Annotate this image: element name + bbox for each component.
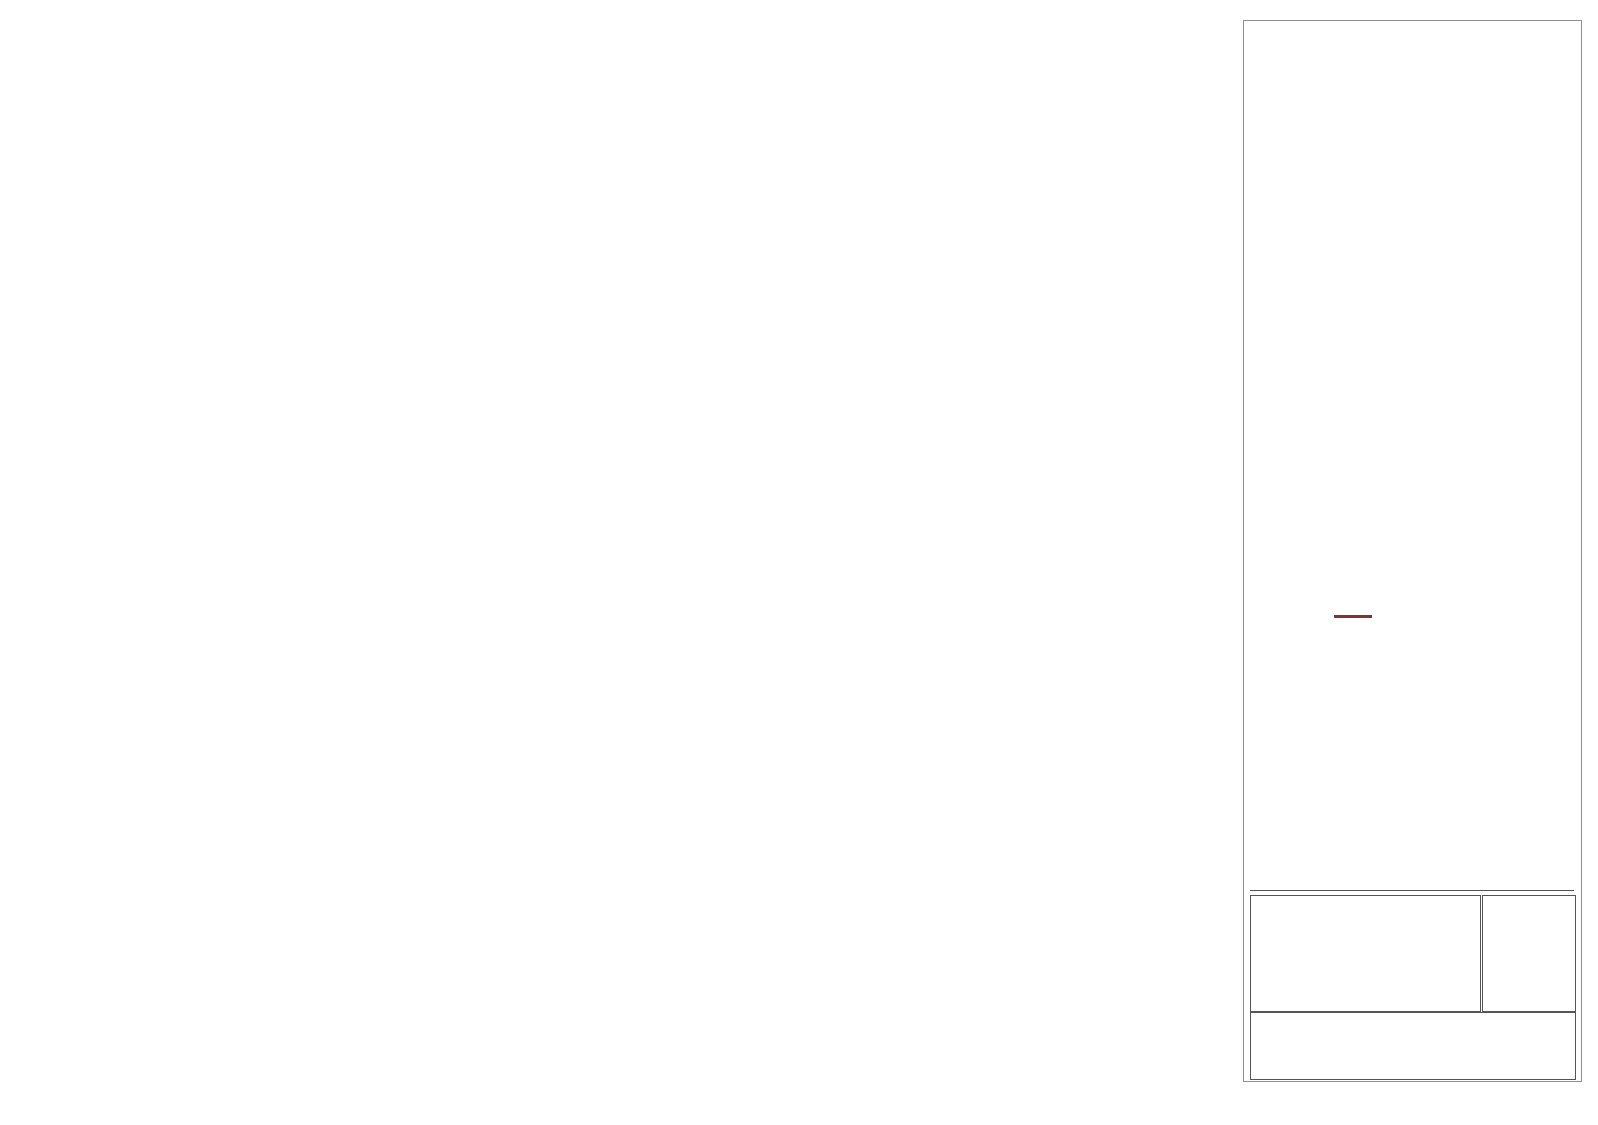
divider bbox=[1250, 890, 1574, 891]
figure-svg bbox=[0, 0, 1235, 1125]
scale-bar bbox=[1251, 896, 1478, 1009]
page bbox=[0, 0, 1598, 1125]
daura-logo bbox=[1244, 285, 1581, 333]
sidebar-panel bbox=[1243, 20, 1582, 1082]
compass-icon bbox=[1483, 896, 1573, 1009]
scale-panel bbox=[1250, 895, 1481, 1012]
topography-line-swatch bbox=[1334, 615, 1372, 618]
title-block bbox=[1250, 1012, 1576, 1080]
azimuth-panel bbox=[1482, 895, 1576, 1012]
star-icon bbox=[1406, 317, 1419, 330]
